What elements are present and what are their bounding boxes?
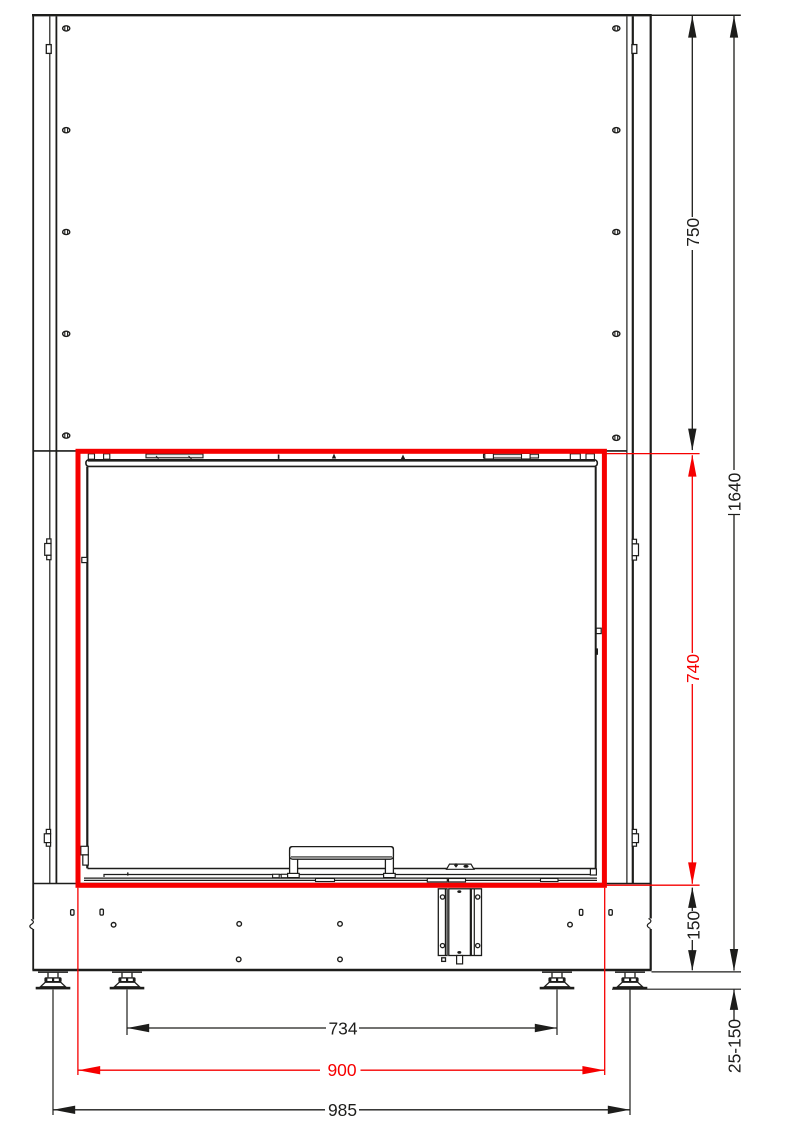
svg-text:1640: 1640	[725, 473, 745, 512]
svg-text:900: 900	[327, 1060, 356, 1080]
svg-text:740: 740	[683, 654, 703, 683]
svg-text:985: 985	[328, 1100, 357, 1120]
svg-text:750: 750	[683, 218, 703, 247]
svg-text:734: 734	[328, 1018, 357, 1038]
svg-text:150: 150	[683, 911, 703, 940]
svg-text:25-150: 25-150	[725, 1019, 745, 1073]
